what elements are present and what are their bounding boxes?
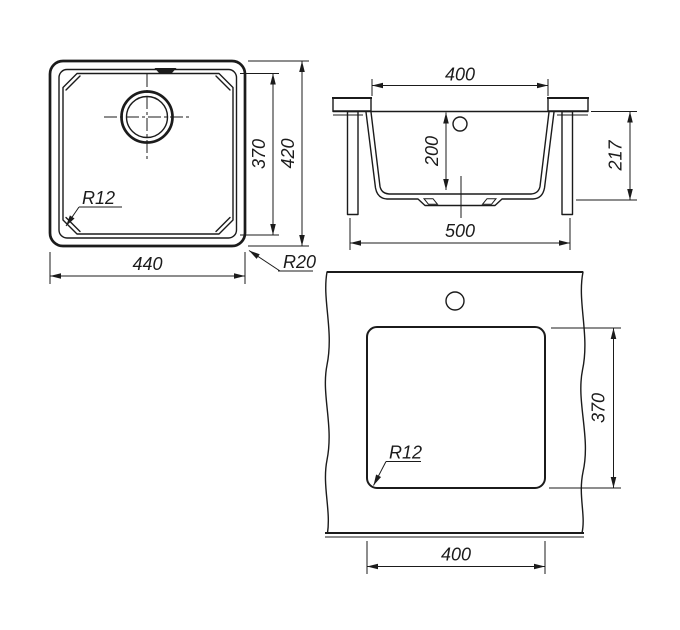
dim-label-420: 420 [278, 138, 298, 168]
dim-label-217: 217 [606, 140, 626, 172]
dim-label-370-cutout: 370 [589, 393, 609, 423]
dim-label-500: 500 [445, 221, 475, 241]
dim-label-440: 440 [132, 254, 162, 274]
dim-label-r20: R20 [283, 252, 316, 272]
dim-label-200: 200 [422, 136, 442, 167]
technical-drawing-canvas: 440 370 420 R12 R20 [0, 0, 680, 630]
dim-label-400-section: 400 [445, 65, 475, 85]
dim-label-400-cutout: 400 [441, 545, 471, 565]
sink-technical-drawing-page: 440 370 420 R12 R20 [0, 0, 680, 630]
dim-label-r12-top: R12 [82, 188, 115, 208]
dim-label-370: 370 [249, 139, 269, 169]
drawing-background [0, 0, 680, 630]
dim-label-r12-cutout: R12 [389, 443, 422, 463]
